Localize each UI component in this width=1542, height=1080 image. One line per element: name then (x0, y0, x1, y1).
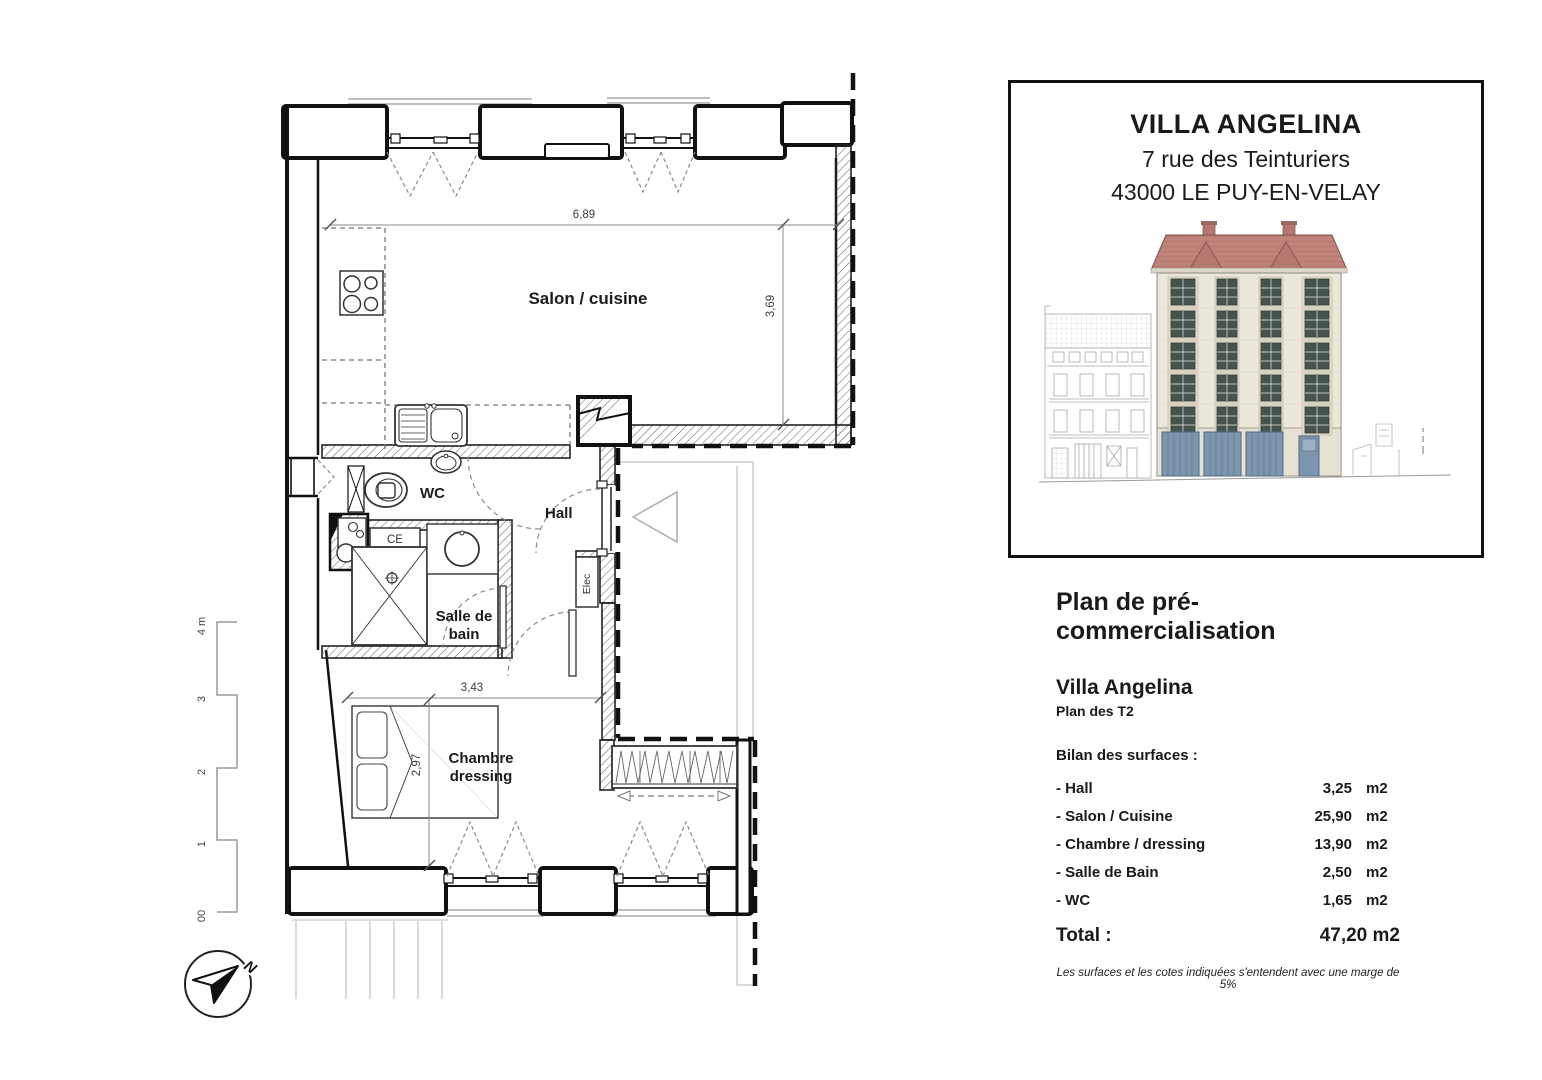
surface-unit: m2 (1366, 864, 1400, 881)
kitchen-sink (395, 404, 467, 446)
label-elec: Elec (581, 574, 593, 594)
duct-block (578, 397, 630, 445)
room-label-bedroom-1: Chambre (448, 750, 513, 767)
compass-north-label: N (241, 957, 261, 978)
kitchen (322, 228, 570, 570)
surface-label: - WC (1056, 892, 1290, 909)
surface-row-hall: - Hall 3,25 m2 (1056, 780, 1400, 797)
plan-sheet: 4 m 3 2 1 00 N Salon / cuisine WC Hall C… (0, 0, 1542, 1080)
room-label-bathroom-2: bain (449, 626, 480, 643)
bathroom-basin (427, 524, 498, 574)
room-label-bedroom-2: dressing (450, 768, 513, 785)
plan-type: Plan des T2 (1056, 703, 1400, 719)
room-label-hall: Hall (545, 505, 573, 522)
surface-value: 1,65 (1290, 892, 1352, 909)
project-title: VILLA ANGELINA (1011, 109, 1481, 140)
surface-value: 25,90 (1290, 808, 1352, 825)
scale-bar: 4 m 3 2 1 00 (196, 617, 237, 922)
scale-label-4m: 4 m (196, 617, 208, 635)
project-subheading: Villa Angelina (1056, 676, 1400, 700)
surface-unit: m2 (1366, 892, 1400, 909)
north-compass-icon: N (185, 951, 260, 1017)
total-label: Total : (1056, 925, 1320, 947)
stove (340, 271, 383, 315)
hatched-walls (322, 145, 851, 790)
room-label-wc: WC (420, 485, 445, 502)
surface-value: 3,25 (1290, 780, 1352, 797)
surface-row-wc: - WC 1,65 m2 (1056, 892, 1400, 909)
bedroom (352, 706, 737, 818)
surface-label: - Salle de Bain (1056, 864, 1290, 881)
entry-door (597, 481, 615, 556)
total-value: 47,20 m2 (1320, 925, 1400, 947)
scale-label-2: 2 (196, 769, 208, 775)
scale-label-1: 1 (196, 841, 208, 847)
shower (352, 547, 427, 645)
neighbour-building-sketch (1045, 306, 1151, 478)
surface-row-salon: - Salon / Cuisine 25,90 m2 (1056, 808, 1400, 825)
project-address-street: 7 rue des Teinturiers (1011, 146, 1481, 173)
room-label-salon: Salon / cuisine (528, 289, 647, 308)
surface-label: - Chambre / dressing (1056, 836, 1290, 853)
surface-unit: m2 (1366, 780, 1400, 797)
surface-label: - Hall (1056, 780, 1290, 797)
floor-plan: 4 m 3 2 1 00 N Salon / cuisine WC Hall C… (0, 0, 980, 1080)
surface-value: 13,90 (1290, 836, 1352, 853)
entrance-arrow (633, 492, 677, 542)
right-sketch (1353, 424, 1423, 475)
scale-label-3: 3 (196, 696, 208, 702)
surface-label: - Salon / Cuisine (1056, 808, 1290, 825)
surfaces-title: Bilan des surfaces : (1056, 747, 1400, 764)
surface-row-chambre: - Chambre / dressing 13,90 m2 (1056, 836, 1400, 853)
project-card: VILLA ANGELINA 7 rue des Teinturiers 430… (1008, 80, 1484, 558)
surface-row-sdb: - Salle de Bain 2,50 m2 (1056, 864, 1400, 881)
surface-unit: m2 (1366, 808, 1400, 825)
wc-fixtures (365, 451, 461, 507)
dim-chambre-width: 3,43 (461, 682, 483, 694)
dim-chambre-height: 2,97 (411, 754, 423, 776)
surface-unit: m2 (1366, 836, 1400, 853)
commercial-info: Plan de pré-commercialisation Villa Ange… (1056, 588, 1400, 991)
sheet-heading: Plan de pré-commercialisation (1056, 588, 1400, 646)
dim-salon-height: 3,69 (765, 295, 777, 317)
surface-total-row: Total : 47,20 m2 (1056, 925, 1400, 947)
label-water-heater: CE (387, 534, 403, 546)
building-elevation (1031, 218, 1461, 518)
project-address-city: 43000 LE PUY-EN-VELAY (1011, 179, 1481, 206)
surface-value: 2,50 (1290, 864, 1352, 881)
room-label-bathroom-1: Salle de (436, 608, 493, 625)
wardrobe (612, 746, 737, 801)
scale-label-0: 00 (196, 910, 208, 922)
entry-door-elevation (1299, 436, 1319, 476)
dim-salon-width: 6,89 (573, 209, 595, 221)
margin-footnote: Les surfaces et les cotes indiquées s'en… (1056, 967, 1400, 991)
garage-doors (1162, 432, 1283, 476)
